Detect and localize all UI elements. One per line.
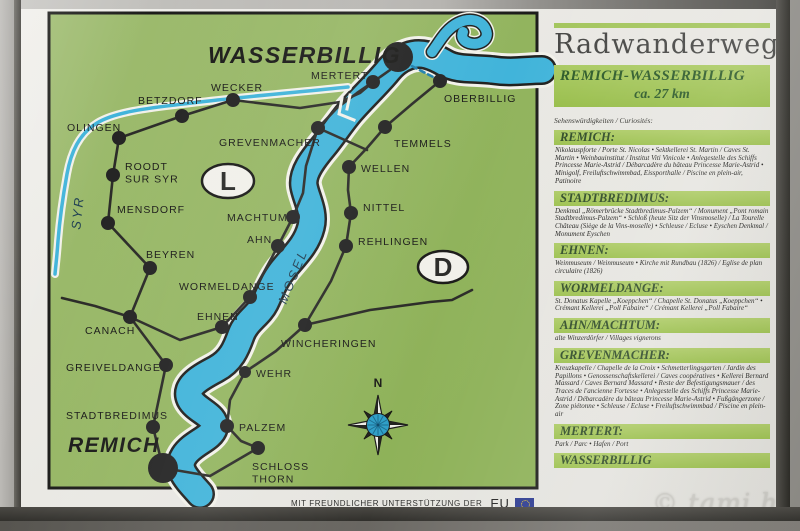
- info-column: Radwanderweg REMICH-WASSERBILLIG ca. 27 …: [554, 0, 770, 507]
- map-town-dot: [220, 419, 234, 433]
- section-body: Denkmal „Römerbrücke Stadtbredimus-Palze…: [555, 208, 769, 239]
- map-town-dot: [106, 168, 120, 182]
- section-mertert: MERTERT: Park / Parc • Hafen / Port: [554, 424, 770, 449]
- map-town-label: OLINGEN: [67, 122, 121, 134]
- map-town-dot: [286, 210, 300, 224]
- sign-frame-edge: [0, 507, 800, 521]
- map-town-label: MENSDORF: [117, 204, 185, 216]
- map-town-label: PALZEM: [239, 422, 286, 434]
- map-town-dot: [339, 239, 353, 253]
- map-town-dot: [101, 216, 115, 230]
- section-header: MERTERT:: [554, 424, 770, 439]
- section-body: Weinmuseum / Weinmuseum • Kirche mit Run…: [555, 260, 769, 275]
- map-town-dot: [433, 74, 447, 88]
- section-header: REMICH:: [554, 130, 770, 145]
- wall-background: [0, 0, 800, 9]
- map-town-dot: [239, 366, 251, 378]
- section-body: Park / Parc • Hafen / Port: [555, 441, 769, 449]
- country-letter: D: [434, 252, 453, 282]
- wall-background: [0, 521, 800, 531]
- map-town-label: MERTERT: [311, 70, 368, 82]
- map-town-label: SCHLOSS: [252, 461, 309, 473]
- sights-subtitle: Sehenswürdigkeiten / Curiosités:: [554, 116, 770, 125]
- map-town-label: REMICH: [68, 434, 160, 457]
- wall-background: [790, 0, 800, 531]
- section-wasserbillig: WASSERBILLIG: [554, 453, 770, 468]
- section-header: AHN/MACHTUM:: [554, 318, 770, 333]
- section-body: alte Winzerdörfer / Villages vignerons: [555, 335, 769, 343]
- section-header: WASSERBILLIG: [554, 453, 770, 468]
- map-town-label: TEMMELS: [394, 138, 452, 150]
- route-distance: ca. 27 km: [560, 87, 764, 103]
- section-body: Kreuzkapelle / Chapelle de la Croix • Sc…: [555, 365, 769, 419]
- map-town-dot: [342, 160, 356, 174]
- section-header: WORMELDANGE:: [554, 281, 770, 296]
- section-body: Nikolauspforte / Porte St. Nicolas • Sek…: [555, 147, 769, 186]
- route-name: REMICH-WASSERBILLIG: [560, 68, 764, 85]
- map-town-label: EHNEN: [197, 311, 239, 323]
- map-town-label: SUR SYR: [125, 174, 179, 186]
- sign-title: Radwanderweg: [554, 29, 770, 60]
- map-town-label: WEHR: [256, 368, 292, 380]
- map-town-dot: [311, 121, 325, 135]
- sign-frame-edge: [776, 0, 790, 531]
- map-town-dot: [143, 261, 157, 275]
- section-remich: REMICH: Nikolauspforte / Porte St. Nicol…: [554, 130, 770, 186]
- map-town-label: OBERBILLIG: [444, 93, 516, 105]
- map-town-dot: [148, 453, 178, 483]
- map-town-label: MACHTUM: [227, 212, 288, 224]
- map-town-label: REHLINGEN: [358, 236, 428, 248]
- accent-bar: [554, 23, 770, 28]
- section-header: GREVENMACHER:: [554, 348, 770, 363]
- section-header: EHNEN:: [554, 243, 770, 258]
- section-body: St. Donatus Kapelle „Koeppchen“ / Chapel…: [555, 298, 769, 313]
- section-grevenmacher: GREVENMACHER: Kreuzkapelle / Chapelle de…: [554, 348, 770, 419]
- section-wormeldange: WORMELDANGE: St. Donatus Kapelle „Koeppc…: [554, 281, 770, 313]
- map-town-label: NITTEL: [363, 202, 405, 214]
- map-town-label: GREIVELDANGE: [66, 362, 161, 374]
- wall-background: [0, 0, 14, 531]
- map-town-dot: [378, 120, 392, 134]
- map-town-label: WELLEN: [361, 163, 410, 175]
- photo-of-map-sign: WASSERBILLIGMERTERTWECKERBETZDORFOLINGEN…: [0, 0, 800, 531]
- map-town-label: THORN: [252, 474, 294, 486]
- map-town-label: WECKER: [211, 82, 263, 94]
- map-town-label: ROODT: [125, 161, 168, 173]
- map-town-dot: [226, 93, 240, 107]
- section-ahn-machtum: AHN/MACHTUM: alte Winzerdörfer / Village…: [554, 318, 770, 343]
- section-ehnen: EHNEN: Weinmuseum / Weinmuseum • Kirche …: [554, 243, 770, 275]
- map-town-dot: [146, 420, 160, 434]
- map-town-label: WASSERBILLIG: [208, 42, 401, 68]
- section-header: STADTBREDIMUS:: [554, 191, 770, 206]
- map-town-dot: [159, 358, 173, 372]
- map-town-label: WORMELDANGE: [179, 281, 275, 293]
- map-town-label: BEYREN: [146, 249, 195, 261]
- map-town-label: CANACH: [85, 325, 135, 337]
- map-town-dot: [344, 206, 358, 220]
- map-town-dot: [298, 318, 312, 332]
- map-town-dot: [251, 441, 265, 455]
- map-town-label: BETZDORF: [138, 95, 203, 107]
- map-town-dot: [271, 239, 285, 253]
- cycle-route-map: WASSERBILLIGMERTERTWECKERBETZDORFOLINGEN…: [0, 0, 560, 531]
- map-town-label: WINCHERINGEN: [281, 338, 376, 350]
- map-town-label: STADTBREDIMUS: [66, 410, 168, 422]
- route-title-box: REMICH-WASSERBILLIG ca. 27 km: [554, 65, 770, 107]
- compass-north-label: N: [374, 376, 383, 390]
- map-town-label: AHN: [247, 234, 272, 246]
- map-town-dot: [175, 109, 189, 123]
- section-stadtbredimus: STADTBREDIMUS: Denkmal „Römerbrücke Stad…: [554, 191, 770, 239]
- sign-frame-edge: [14, 0, 21, 531]
- map-town-dot: [123, 310, 137, 324]
- map-town-label: GREVENMACHER: [219, 137, 321, 149]
- country-letter: L: [220, 166, 236, 196]
